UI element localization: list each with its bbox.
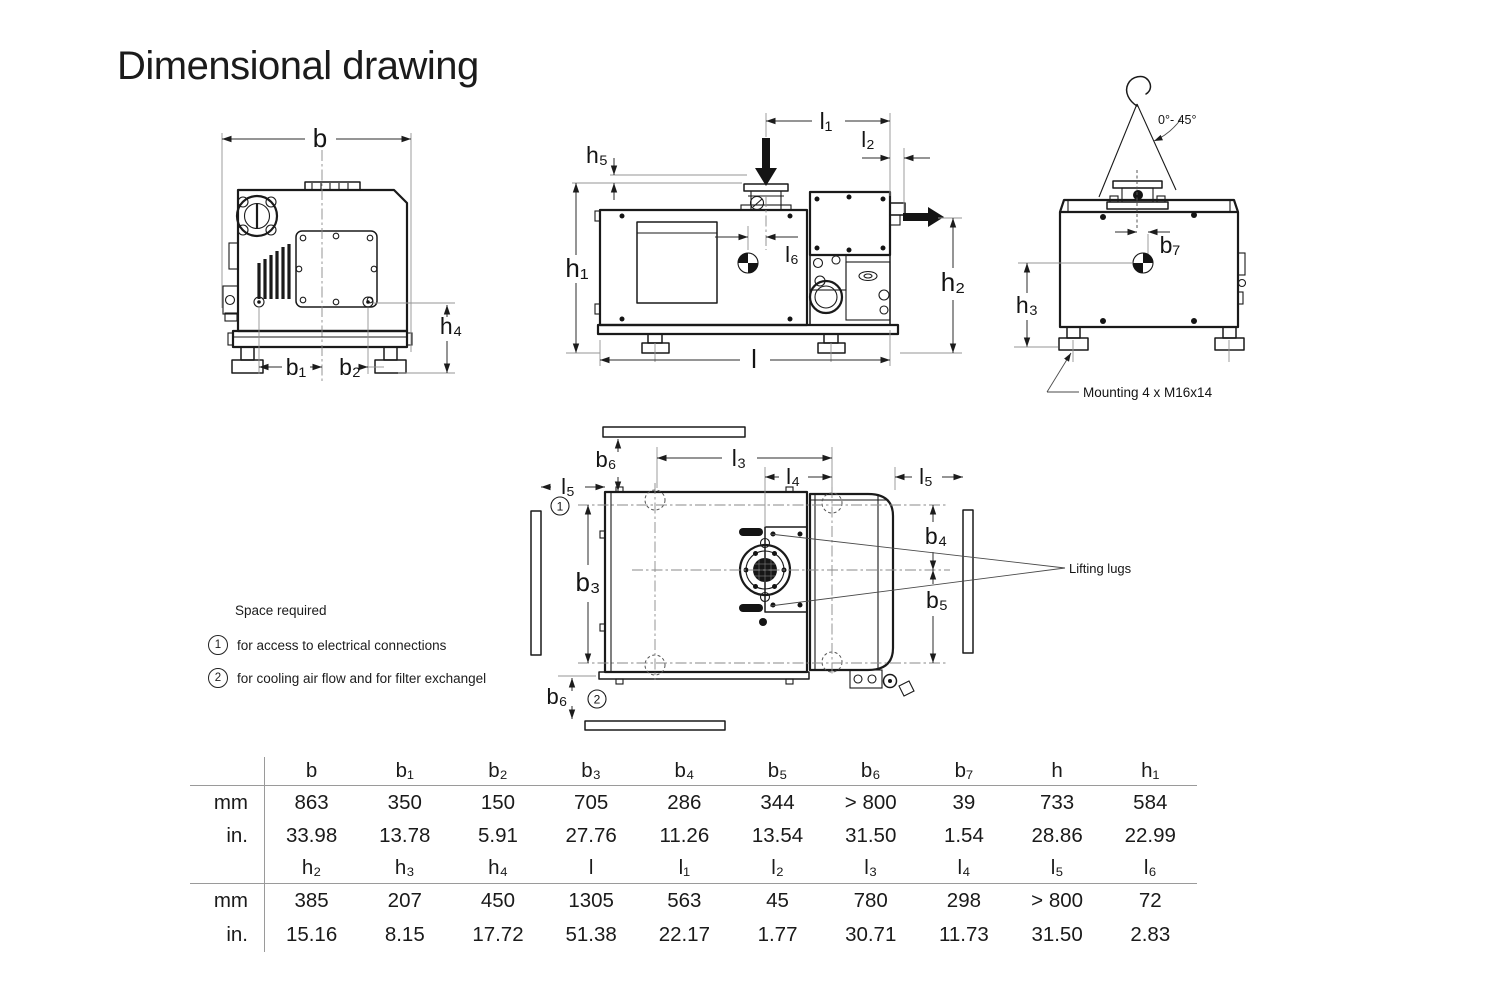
dim-label-l3: l₃ bbox=[732, 445, 746, 471]
dim-value-cell: 51.38 bbox=[545, 917, 638, 952]
dim-label-l4: l₄ bbox=[786, 464, 800, 489]
dim-header-cell: l₆ bbox=[1104, 852, 1197, 884]
dim-label-b7: b₇ bbox=[1160, 232, 1181, 258]
mounting-note: Mounting 4 x M16x14 bbox=[1083, 385, 1213, 400]
dim-value-cell: > 800 bbox=[824, 786, 917, 819]
dim-header-cell: h₂ bbox=[265, 852, 358, 884]
dim-label-l1: l₁ bbox=[820, 108, 833, 134]
dim-value-cell: 563 bbox=[638, 884, 731, 917]
dim-value-cell: 11.73 bbox=[917, 917, 1010, 952]
dim-value-cell: 733 bbox=[1011, 786, 1104, 819]
dim-value-cell: 298 bbox=[917, 884, 1010, 917]
dimension-table: bb₁b₂b₃b₄b₅b₆b₇hh₁mm863350150705286344> … bbox=[190, 757, 1197, 952]
crane-hook-icon bbox=[1127, 77, 1151, 106]
dim-header-cell: l₃ bbox=[824, 852, 917, 884]
dim-header-cell: l bbox=[545, 852, 638, 884]
space-ref-1-badge: 1 bbox=[551, 497, 569, 515]
center-of-mass-icon bbox=[738, 253, 758, 273]
dim-label-b6-top: b₆ bbox=[595, 447, 616, 472]
dim-value-cell: 39 bbox=[917, 786, 1010, 819]
note-2-badge: 2 bbox=[208, 668, 228, 688]
dim-header-cell: l₂ bbox=[731, 852, 824, 884]
dim-label-l5-right: l₅ bbox=[919, 464, 933, 489]
top-view: b₆ l₃ l₄ l₅ l₅ b₃ b₄ b₅ bbox=[531, 427, 1132, 730]
dim-value-cell: 17.72 bbox=[451, 917, 544, 952]
dim-header-cell: l₅ bbox=[1011, 852, 1104, 884]
wall-bottom bbox=[585, 721, 725, 730]
dim-value-cell: 780 bbox=[824, 884, 917, 917]
angle-label: 0°- 45° bbox=[1158, 113, 1197, 127]
notes-heading: Space required bbox=[235, 603, 486, 618]
dim-label-h5: h₅ bbox=[586, 142, 608, 168]
center-of-mass-icon bbox=[1133, 253, 1153, 273]
dim-header-cell: h₁ bbox=[1104, 757, 1197, 786]
dim-value-cell: 1.54 bbox=[917, 819, 1010, 852]
dim-label-l2: l₂ bbox=[861, 127, 874, 152]
dim-value-cell: 207 bbox=[358, 884, 451, 917]
dim-value-cell: 28.86 bbox=[1011, 819, 1104, 852]
space-required-notes: Space required 1 for access to electrica… bbox=[208, 603, 486, 701]
dim-value-cell: 8.15 bbox=[358, 917, 451, 952]
dim-label-l6: l₆ bbox=[785, 242, 799, 267]
dim-value-cell: 350 bbox=[358, 786, 451, 819]
dim-value-cell: 22.99 bbox=[1104, 819, 1197, 852]
unit-label-cell: in. bbox=[190, 819, 265, 852]
intake-flow-arrow bbox=[755, 138, 777, 186]
dim-header-cell: b bbox=[265, 757, 358, 786]
dim-header-cell: h bbox=[1011, 757, 1104, 786]
dim-value-cell: 385 bbox=[265, 884, 358, 917]
end-view: 0°- 45° bbox=[1014, 77, 1246, 400]
dim-header-cell: b₆ bbox=[824, 757, 917, 786]
dim-label-b3: b₃ bbox=[575, 567, 600, 597]
dim-value-cell: 11.26 bbox=[638, 819, 731, 852]
unit-label-cell: mm bbox=[190, 884, 265, 917]
dim-value-cell: 450 bbox=[451, 884, 544, 917]
panel-screws bbox=[296, 233, 377, 305]
exhaust-flow-arrow bbox=[903, 207, 944, 227]
note-2-text: for cooling air flow and for filter exch… bbox=[237, 671, 486, 686]
note-1-text: for access to electrical connections bbox=[237, 638, 446, 653]
svg-text:1: 1 bbox=[557, 500, 564, 514]
dim-value-cell: 1.77 bbox=[731, 917, 824, 952]
inlet-flange-side bbox=[237, 196, 277, 236]
dim-value-cell: 31.50 bbox=[1011, 917, 1104, 952]
dim-label-b6-bottom: b₆ bbox=[546, 684, 567, 709]
dim-header-cell: b₇ bbox=[917, 757, 1010, 786]
svg-text:2: 2 bbox=[594, 693, 601, 707]
note-1-badge: 1 bbox=[208, 635, 228, 655]
dim-value-cell: 15.16 bbox=[265, 917, 358, 952]
unit-label-cell: mm bbox=[190, 786, 265, 819]
dim-value-cell: 33.98 bbox=[265, 819, 358, 852]
lifting-lugs-label: Lifting lugs bbox=[1069, 561, 1132, 576]
note-item-1: 1 for access to electrical connections bbox=[208, 635, 486, 655]
dim-value-cell: 344 bbox=[731, 786, 824, 819]
dim-label-b4: b₄ bbox=[925, 523, 947, 549]
dim-value-cell: > 800 bbox=[1011, 884, 1104, 917]
dim-value-cell: 5.91 bbox=[451, 819, 544, 852]
dim-header-cell: b₂ bbox=[451, 757, 544, 786]
dim-value-cell: 13.78 bbox=[358, 819, 451, 852]
dim-header-cell: h₃ bbox=[358, 852, 451, 884]
dim-label-l: l bbox=[751, 344, 757, 374]
dimensional-drawing-page: Dimensional drawing bbox=[0, 0, 1502, 1002]
dim-label-b5: b₅ bbox=[926, 587, 948, 613]
front-view: h₅ h₁ l₁ l₂ l₆ h₂ bbox=[565, 108, 965, 374]
dim-header-cell: b₅ bbox=[731, 757, 824, 786]
dim-value-cell: 72 bbox=[1104, 884, 1197, 917]
unit-label-cell: in. bbox=[190, 917, 265, 952]
wall-top bbox=[603, 427, 745, 437]
dim-value-cell: 2.83 bbox=[1104, 917, 1197, 952]
dim-value-cell: 31.50 bbox=[824, 819, 917, 852]
dim-header-cell: h₄ bbox=[451, 852, 544, 884]
dim-header-cell: l₁ bbox=[638, 852, 731, 884]
dim-value-cell: 863 bbox=[265, 786, 358, 819]
dim-label-b: b bbox=[313, 123, 327, 153]
wall-right bbox=[963, 510, 973, 653]
dim-header-cell: b₁ bbox=[358, 757, 451, 786]
dim-value-cell: 13.54 bbox=[731, 819, 824, 852]
dim-value-cell: 286 bbox=[638, 786, 731, 819]
dim-label-h3: h₃ bbox=[1016, 292, 1038, 318]
dim-value-cell: 150 bbox=[451, 786, 544, 819]
dim-value-cell: 705 bbox=[545, 786, 638, 819]
dim-header-cell bbox=[190, 852, 265, 884]
dim-value-cell: 45 bbox=[731, 884, 824, 917]
dim-value-cell: 1305 bbox=[545, 884, 638, 917]
dim-value-cell: 584 bbox=[1104, 786, 1197, 819]
dim-label-b2: b₂ bbox=[339, 354, 361, 380]
space-ref-2-badge: 2 bbox=[588, 690, 606, 708]
dim-header-cell: b₄ bbox=[638, 757, 731, 786]
dim-label-b1: b₁ bbox=[286, 354, 307, 380]
dim-label-l5-left: l₅ bbox=[561, 474, 575, 499]
dim-label-h1: h₁ bbox=[565, 253, 588, 283]
dim-label-h2: h₂ bbox=[941, 267, 966, 297]
wall-left bbox=[531, 511, 541, 655]
dim-value-cell: 22.17 bbox=[638, 917, 731, 952]
dim-header-cell: l₄ bbox=[917, 852, 1010, 884]
side-view: b h₄ b₁ b₂ bbox=[222, 123, 462, 382]
note-item-2: 2 for cooling air flow and for filter ex… bbox=[208, 668, 486, 688]
dim-header-cell: b₃ bbox=[545, 757, 638, 786]
dim-value-cell: 30.71 bbox=[824, 917, 917, 952]
dim-header-cell bbox=[190, 757, 265, 786]
vent-slats bbox=[259, 244, 289, 299]
dim-label-h4: h₄ bbox=[440, 313, 462, 339]
dim-value-cell: 27.76 bbox=[545, 819, 638, 852]
